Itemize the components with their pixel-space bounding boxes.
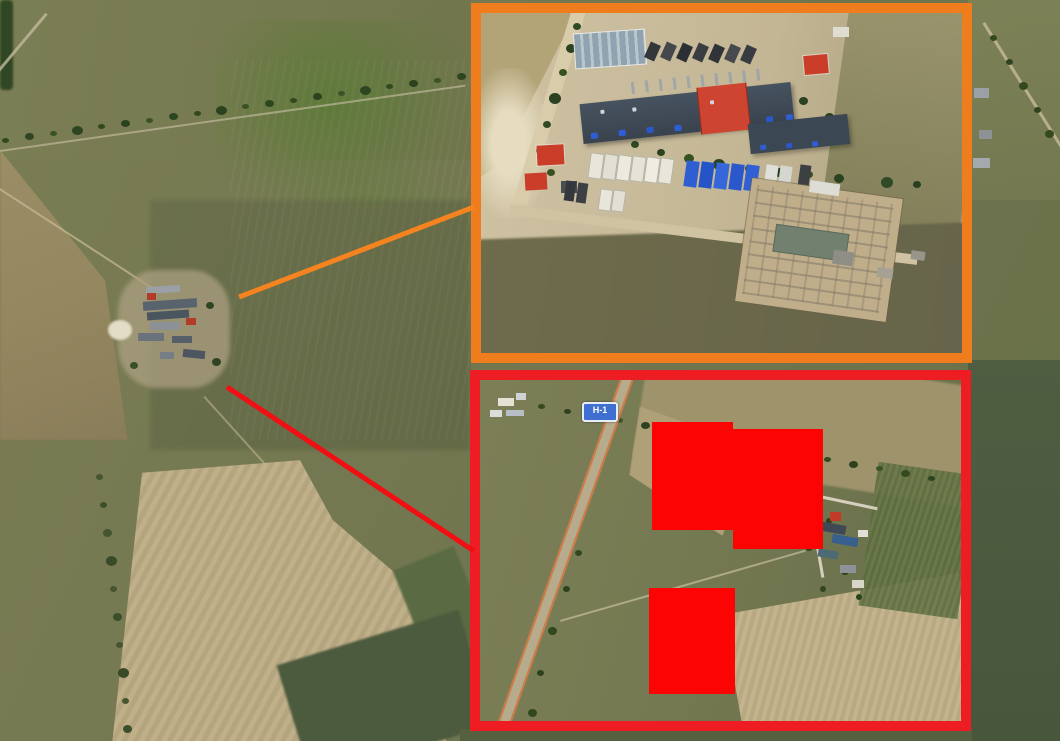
road-sign-shield: Н-1 <box>582 402 618 422</box>
shed-red-roof <box>803 54 829 75</box>
redaction-box <box>652 422 733 530</box>
building-roof-red <box>147 293 156 300</box>
redaction-box <box>733 429 823 549</box>
plow-stripes-overlay <box>230 60 470 440</box>
shed-red-roof <box>525 172 548 190</box>
field-right-strip-top <box>968 0 1060 200</box>
road-sign-label: Н-1 <box>593 405 608 415</box>
field-right-strip-dark <box>968 360 1060 741</box>
building-roof-gray <box>138 333 164 341</box>
shed-right-strip <box>979 130 992 139</box>
greenhouse-roof <box>573 29 647 70</box>
blue-door-dots <box>760 145 766 151</box>
shed-right-strip <box>974 88 989 98</box>
shed-right-strip <box>973 158 990 168</box>
inset-facility-closeup <box>471 3 972 363</box>
shed-gray <box>910 250 925 261</box>
shed-white <box>833 27 849 37</box>
trees-left-edge <box>0 0 13 90</box>
white-vent-dots <box>600 110 604 114</box>
inset-facility-scene <box>481 13 962 353</box>
tree-cluster-icon <box>631 141 639 148</box>
inset-redacted-area: Н-1 <box>470 370 971 731</box>
white-smoke-patch <box>108 320 132 340</box>
tree-cluster-icon <box>573 23 581 30</box>
tree-row-icon <box>2 138 9 143</box>
scrub-row-icon <box>96 474 103 480</box>
redaction-box <box>649 588 735 694</box>
tree-cluster-icon <box>990 35 997 41</box>
building-roof-gray <box>160 352 174 359</box>
blue-door-dots <box>591 132 599 139</box>
inset-redacted-scene: Н-1 <box>480 380 961 721</box>
building-roof-dark <box>172 336 192 343</box>
building-red-roof-section <box>696 83 751 135</box>
substation-yard <box>735 178 903 322</box>
satellite-map: Н-1 <box>0 0 1060 741</box>
tree-dot <box>206 302 214 309</box>
shed-gray <box>832 250 854 267</box>
oi-bottom-field <box>471 222 972 363</box>
tree-dot <box>130 362 138 369</box>
building-roof-red <box>186 318 196 325</box>
settlement-main <box>100 262 240 397</box>
redaction-layer <box>480 380 961 721</box>
shed-red-roof <box>536 144 564 165</box>
tree-dot <box>212 358 221 366</box>
shed-gray <box>876 267 893 279</box>
building-roof-gray <box>150 322 180 330</box>
